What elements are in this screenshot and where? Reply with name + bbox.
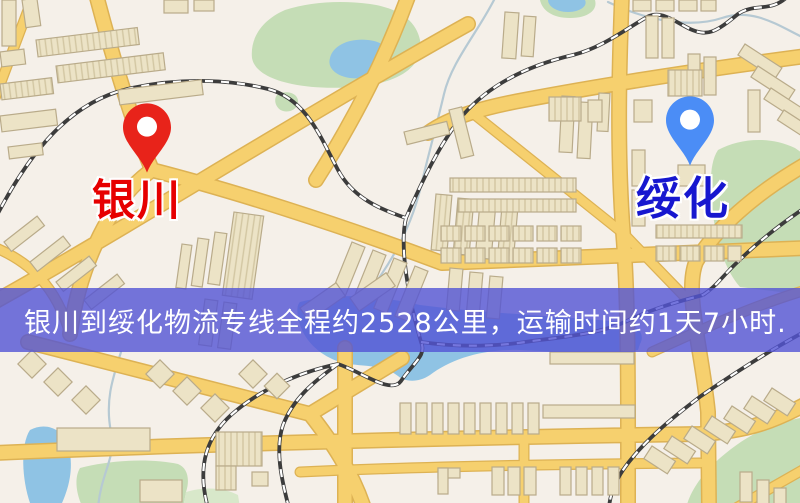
route-info-banner: 银川到绥化物流专线全程约2528公里，运输时间约1天7小时. [0, 288, 800, 352]
route-info-text: 银川到绥化物流专线全程约2528公里，运输时间约1天7小时. [24, 301, 787, 340]
origin-city-label: 银川 [92, 180, 182, 223]
map-pin-icon [117, 102, 177, 174]
destination-marker-pin[interactable] [662, 95, 718, 167]
destination-city-label: 绥化 [636, 176, 730, 221]
map-screenshot: 银川 绥化 银川到绥化物流专线全程约2528公里，运输时间约1天7小时. [0, 0, 800, 503]
map-pin-icon [662, 95, 718, 167]
origin-marker-pin[interactable] [117, 102, 177, 174]
map-canvas [0, 0, 800, 503]
